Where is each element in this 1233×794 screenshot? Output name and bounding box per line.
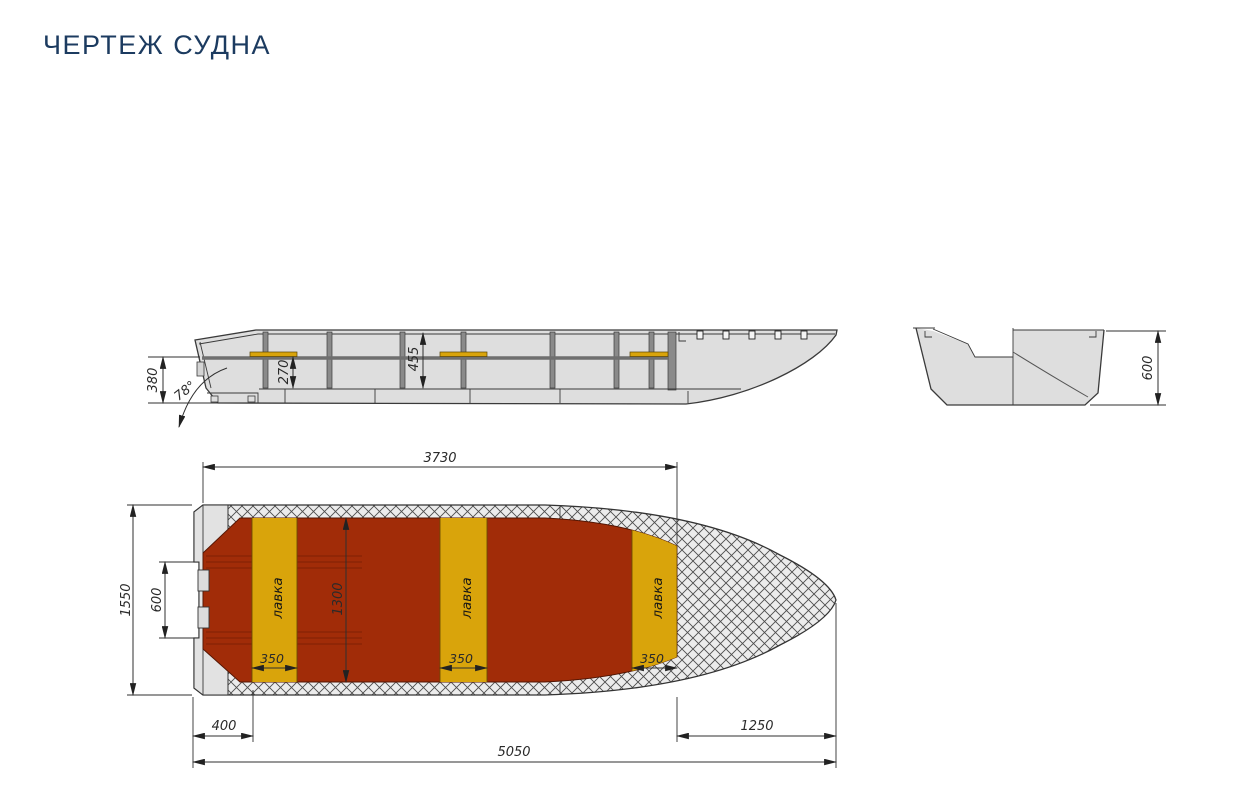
bench-label-3: лавка (650, 577, 666, 619)
bench-label-2: лавка (459, 577, 475, 619)
svg-text:455: 455 (407, 347, 422, 372)
page-title: ЧЕРТЕЖ СУДНА (43, 30, 271, 61)
section-top-caps (913, 328, 1104, 330)
svg-text:380: 380 (146, 368, 161, 393)
svg-text:270: 270 (277, 360, 292, 385)
plan-view: лавка лавка лавка 3730 1550 600 1300 (119, 451, 836, 768)
keel-block (211, 396, 218, 402)
svg-text:350: 350 (640, 651, 664, 666)
svg-text:1250: 1250 (740, 719, 773, 734)
section-fill (916, 328, 1104, 405)
cross-section-view: 600 (913, 328, 1166, 405)
svg-text:78°: 78° (172, 378, 199, 404)
svg-text:1550: 1550 (119, 583, 134, 616)
transom-plate (197, 362, 204, 376)
dim-stern-to-bench: 400 (193, 690, 253, 768)
boat-drawing: 380 78° 270 455 600 (0, 0, 1233, 789)
svg-text:400: 400 (212, 719, 237, 734)
svg-text:5050: 5050 (497, 745, 530, 760)
dim-seat-height: 270 (277, 357, 293, 388)
svg-text:600: 600 (150, 588, 165, 613)
bench-label-1: лавка (270, 577, 286, 619)
keel-block (248, 396, 255, 402)
svg-text:350: 350 (260, 651, 284, 666)
dim-overall-length: 5050 (193, 745, 836, 762)
clamp-pad (198, 570, 209, 591)
svg-text:1300: 1300 (331, 582, 346, 615)
svg-text:350: 350 (449, 651, 473, 666)
dim-transom-recess: 600 (150, 562, 198, 638)
svg-text:3730: 3730 (423, 451, 456, 466)
svg-text:600: 600 (1141, 356, 1156, 381)
clamp-pad (198, 607, 209, 628)
side-view: 380 78° 270 455 (146, 330, 837, 427)
